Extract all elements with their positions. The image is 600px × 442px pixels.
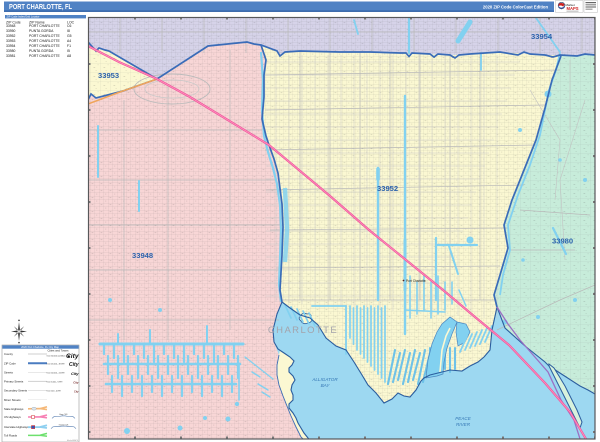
svg-text:Secondary Streets: Secondary Streets: [4, 389, 28, 393]
svg-text:PUNTA GORDA: PUNTA GORDA: [29, 29, 54, 33]
svg-text:ALLIGATOR: ALLIGATOR: [311, 377, 338, 382]
svg-text:ZIP Code: ZIP Code: [4, 362, 16, 366]
svg-text:Over 5,000 - 9,999: Over 5,000 - 9,999: [47, 380, 63, 383]
svg-text:Over 50,000 and More: Over 50,000 and More: [47, 355, 66, 358]
svg-text:US Highways: US Highways: [4, 415, 21, 419]
svg-text:Primary Streets: Primary Streets: [4, 380, 24, 384]
svg-text:A8: A8: [67, 54, 71, 58]
svg-text:Interst / US: Interst / US: [59, 423, 69, 426]
svg-text:C6: C6: [67, 24, 71, 28]
svg-text:ZIP Code Index/Grid Locator: ZIP Code Index/Grid Locator: [7, 15, 40, 19]
svg-text:33953: 33953: [98, 71, 119, 80]
svg-text:F1: F1: [67, 44, 71, 48]
svg-text:Streets: Streets: [4, 371, 13, 375]
svg-text:Over 10,000 - 24,999: Over 10,000 - 24,999: [47, 372, 65, 375]
svg-text:I8: I8: [67, 29, 70, 33]
svg-text:PUNTA GORDA: PUNTA GORDA: [29, 49, 54, 53]
svg-text:33954: 33954: [6, 44, 16, 48]
svg-text:State Highways: State Highways: [4, 407, 24, 411]
svg-text:BAY: BAY: [321, 383, 331, 388]
svg-text:RIVER: RIVER: [456, 422, 471, 427]
svg-text:City: City: [74, 391, 79, 394]
svg-text:33980: 33980: [6, 49, 16, 53]
svg-text:A4: A4: [67, 39, 71, 43]
svg-text:Hwy / US: Hwy / US: [60, 414, 69, 416]
svg-text:Minor Streets: Minor Streets: [4, 398, 21, 402]
svg-text:Toll Roads: Toll Roads: [4, 433, 18, 437]
svg-text:PORT CHARLOTTE: PORT CHARLOTTE: [29, 24, 61, 28]
svg-text:Port Charlotte: Port Charlotte: [406, 279, 426, 283]
svg-text:PORT CHARLOTTE, FL: PORT CHARLOTTE, FL: [9, 2, 72, 11]
svg-text:33948: 33948: [132, 251, 153, 260]
svg-text:Over 100 - 4,999: Over 100 - 4,999: [47, 389, 61, 392]
svg-text:33981: 33981: [6, 54, 16, 58]
svg-text:City: City: [69, 362, 79, 368]
svg-text:Interstate Highways: Interstate Highways: [4, 425, 29, 429]
svg-text:MAPS: MAPS: [567, 6, 579, 11]
svg-text:PORT CHARLOTTE: PORT CHARLOTTE: [29, 44, 61, 48]
svg-text:MarketMAPS: MarketMAPS: [67, 439, 79, 442]
svg-text:PEACE: PEACE: [455, 416, 472, 421]
svg-text:City: City: [73, 381, 79, 385]
svg-text:PORT CHARLOTTE: PORT CHARLOTTE: [29, 54, 61, 58]
svg-text:33953: 33953: [6, 39, 16, 43]
svg-text:33950: 33950: [6, 29, 16, 33]
svg-text:33948: 33948: [6, 24, 16, 28]
svg-text:2020 ZIP Code ColorCast Editio: 2020 ZIP Code ColorCast Edition: [483, 5, 549, 10]
svg-text:I5: I5: [67, 49, 70, 53]
svg-text:County: County: [4, 352, 13, 356]
svg-text:G5: G5: [67, 34, 72, 38]
svg-text:PORT CHARLOTTE: PORT CHARLOTTE: [29, 34, 61, 38]
svg-text:33952: 33952: [6, 34, 16, 38]
svg-text:PORT CHARLOTTE: PORT CHARLOTTE: [29, 39, 61, 43]
svg-text:33980: 33980: [552, 237, 573, 246]
svg-text:33952: 33952: [377, 184, 398, 193]
svg-text:CHARLOTTE: CHARLOTTE: [268, 325, 338, 336]
svg-text:33954: 33954: [531, 32, 553, 41]
svg-text:Over 25,000 - 49,999: Over 25,000 - 49,999: [47, 363, 65, 366]
svg-text:City: City: [71, 371, 79, 376]
